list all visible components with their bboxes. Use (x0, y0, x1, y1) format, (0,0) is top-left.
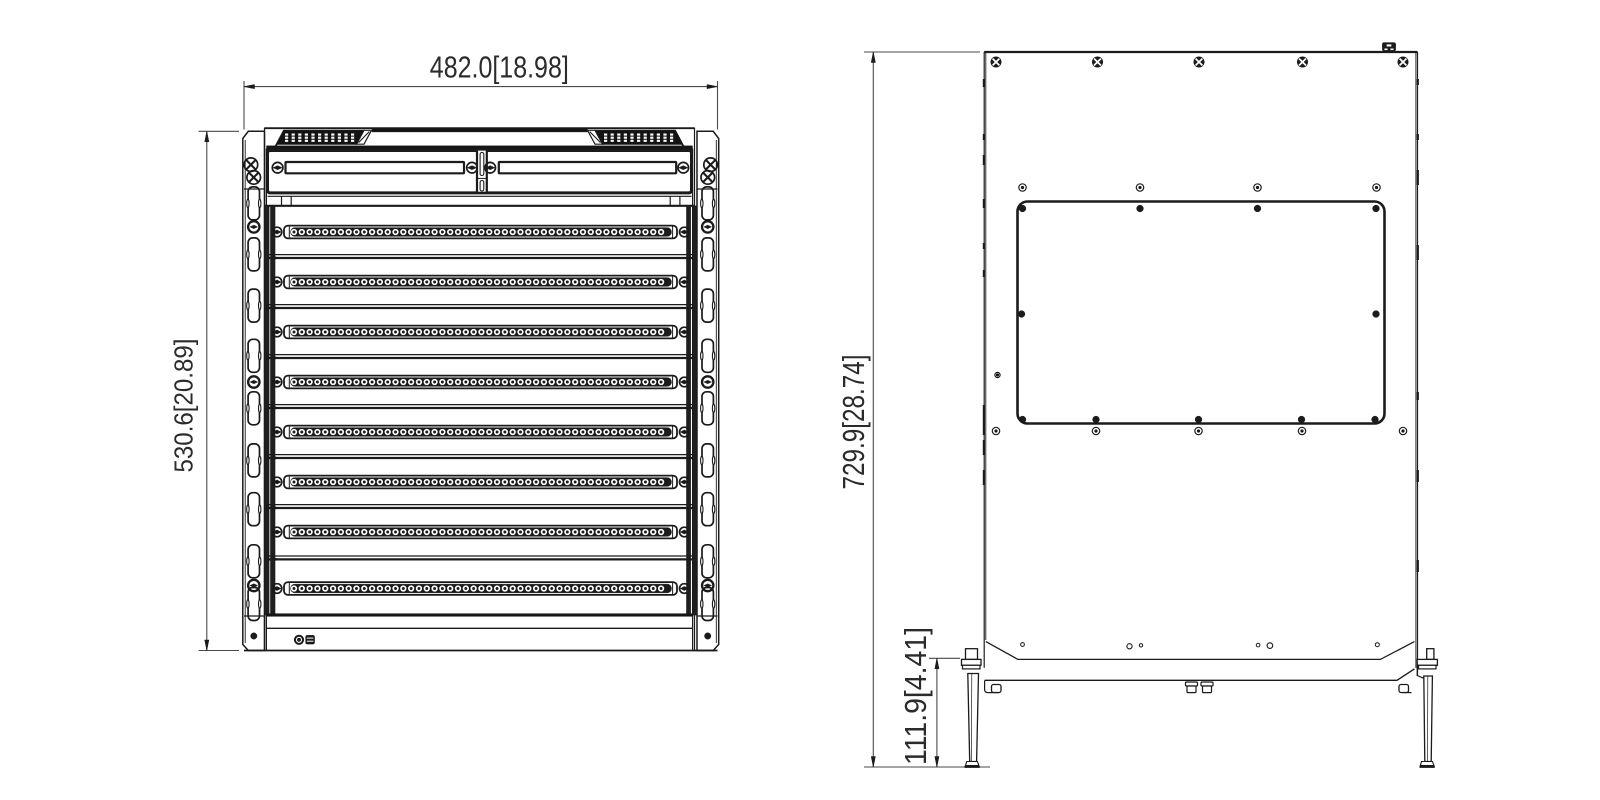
svg-text:111.9[4.41]: 111.9[4.41] (898, 627, 933, 765)
svg-text:530.6[20.89]: 530.6[20.89] (171, 339, 199, 473)
svg-text:729.9[28.74]: 729.9[28.74] (836, 355, 871, 490)
svg-text:482.0[18.98]: 482.0[18.98] (430, 50, 569, 85)
